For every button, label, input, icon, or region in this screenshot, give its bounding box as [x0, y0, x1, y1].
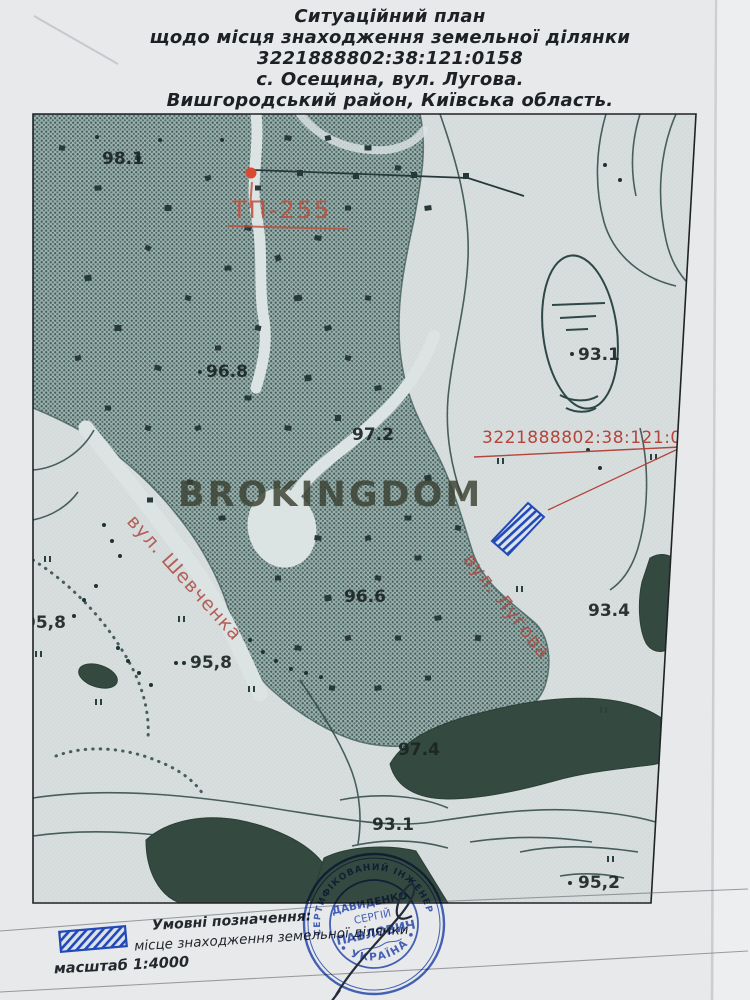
elevation-label: 93.1: [372, 815, 414, 835]
map-canvas: 98.196.897.293.195,895,896.693.497.493.1…: [24, 114, 716, 903]
cadastral-annotation: 3221888802:38:121:0158: [482, 428, 716, 448]
elevation-label: 95,2: [578, 873, 620, 893]
tp-point-marker: [246, 168, 257, 179]
legend-scale-label: масштаб 1:4000: [54, 954, 190, 977]
watermark-text: BROKINGDOM: [178, 475, 483, 515]
elevation-label: 96.6: [344, 587, 386, 607]
elevation-label: 93.4: [588, 601, 630, 621]
elevation-label: 95,8: [24, 613, 66, 633]
situational-plan-map: 98.196.897.293.195,895,896.693.497.493.1…: [0, 0, 750, 1000]
elevation-label: 95,8: [190, 653, 232, 673]
elevation-label: 96.8: [206, 362, 248, 382]
tp-label: ТП-255: [231, 196, 331, 224]
elevation-label: 97.4: [398, 740, 440, 760]
scanned-document-page: Ситуаційний план щодо місця знаходження …: [0, 0, 750, 1000]
elevation-label: 97.2: [352, 425, 394, 445]
elevation-label: 93.1: [578, 345, 620, 365]
elevation-label: 98.1: [102, 149, 144, 169]
legend-plot-swatch: [59, 926, 126, 952]
